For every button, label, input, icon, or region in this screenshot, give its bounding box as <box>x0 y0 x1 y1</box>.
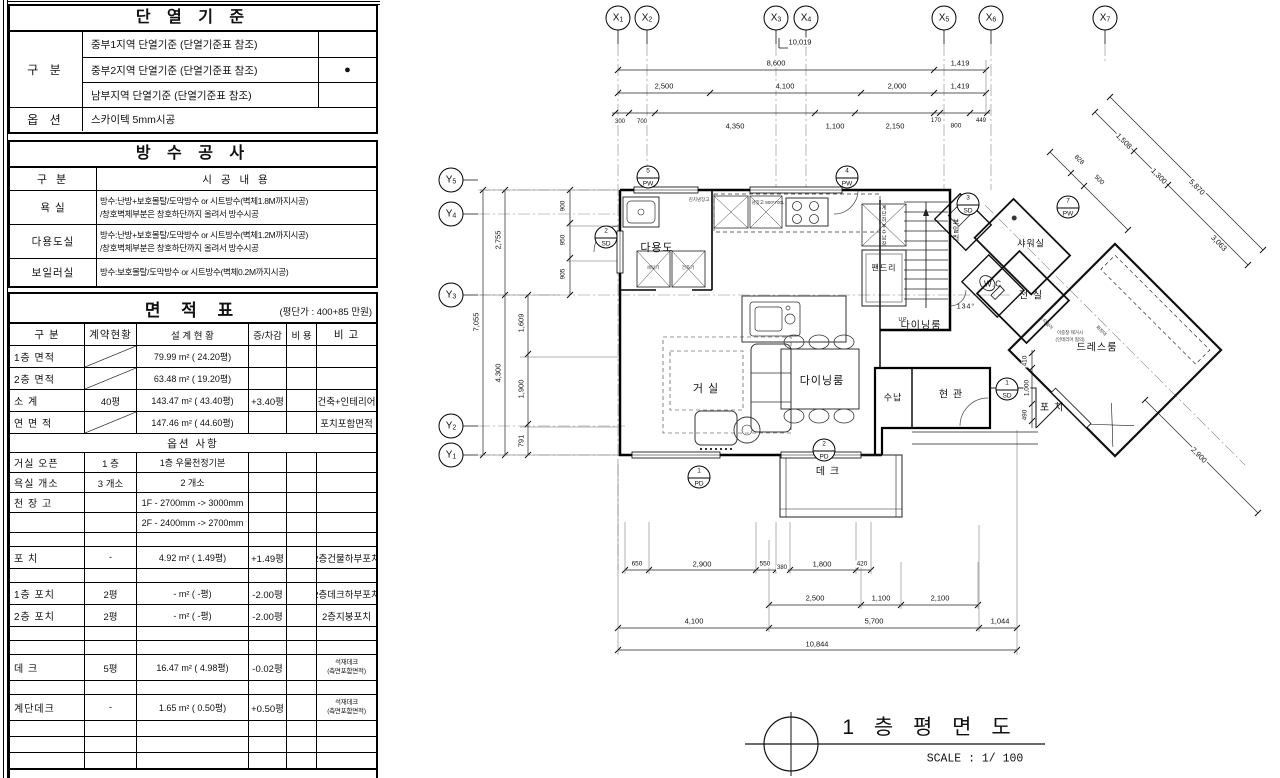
table-cell <box>286 641 316 654</box>
table-cell <box>286 412 316 433</box>
insulation-row-text: 중부1지역 단열기준 (단열기준표 참조) <box>82 32 318 57</box>
table-cell <box>286 547 316 568</box>
table-cell <box>316 473 376 492</box>
table-row: 1층 포치2평- m² ( -평)-2.00평2층데크하부포치 <box>10 582 376 604</box>
table-cell <box>286 627 316 640</box>
table-cell: 2 개소 <box>136 473 248 492</box>
table-cell <box>286 721 316 736</box>
wing-shower <box>975 199 1070 294</box>
table-cell: 석재데크(측면포함면적) <box>316 655 376 680</box>
table-cell: 40평 <box>84 390 136 411</box>
table-cell <box>248 533 286 546</box>
table-cell <box>10 533 84 546</box>
waterproof-line: 방수:보호몰탈/도막방수 or 시트방수(벽체0.2M까지시공) <box>100 266 288 278</box>
table-cell <box>316 368 376 389</box>
table-cell: 2층데크하부포치 <box>316 583 376 604</box>
insulation-row-text: 남부지역 단열기준 (단열기준표 참조) <box>82 82 318 107</box>
table-cell: 1 층 <box>84 453 136 472</box>
table-cell <box>10 641 84 654</box>
table-cell: 143.47 m² ( 43.40평) <box>136 390 248 411</box>
table-cell <box>316 346 376 367</box>
table-cell <box>248 737 286 752</box>
table-cell <box>84 641 136 654</box>
table-row <box>10 680 376 694</box>
table-cell: +1.49평 <box>248 547 286 568</box>
table-cell <box>248 473 286 492</box>
table-row: 2층 면적63.48 m² ( 19.20평) <box>10 367 376 389</box>
table-cell: 천 장 고 <box>10 493 84 512</box>
table-row: 옵션 사항 <box>10 433 376 452</box>
waterproof-row-label: 욕 실 <box>10 190 96 224</box>
table-cell: - <box>84 547 136 568</box>
table-cell: -2.00평 <box>248 605 286 626</box>
table-cell: 연 면 적 <box>10 412 84 433</box>
area-table-header: 구 분 계약현황 설 계 현 황 증/차감 비 용 비 고 <box>10 324 376 345</box>
area-table-rows: 1층 면적79.99 m² ( 24.20평)2층 면적63.48 m² ( 1… <box>10 345 376 778</box>
table-cell: 147.46 m² ( 44.60평) <box>136 412 248 433</box>
table-cell: 2층 포치 <box>10 605 84 626</box>
table-row <box>10 626 376 640</box>
table-row <box>10 532 376 546</box>
table-cell <box>286 605 316 626</box>
table-cell <box>248 753 286 768</box>
table-cell: 1.65 m² ( 0.50평) <box>136 695 248 720</box>
table-cell <box>248 368 286 389</box>
table-cell <box>84 753 136 768</box>
table-cell: 16.47 m² ( 4.98평) <box>136 655 248 680</box>
table-cell: 2평 <box>84 605 136 626</box>
area-header-cell: 증/차감 <box>248 324 286 345</box>
table-cell <box>10 721 84 736</box>
table-cell <box>84 627 136 640</box>
table-cell: 1층 포치 <box>10 583 84 604</box>
extension-lines <box>480 60 1017 655</box>
selected-dot: ● <box>318 57 376 82</box>
table-cell <box>10 753 84 768</box>
table-row: 데 크5평16.47 m² ( 4.98평)-0.02평석재데크(측면포함면적) <box>10 654 376 680</box>
table-cell <box>316 721 376 736</box>
table-cell: - m² ( -평) <box>136 583 248 604</box>
area-header-cell: 설 계 현 황 <box>136 324 248 345</box>
table-row: 욕실 개소3 개소2 개소 <box>10 472 376 492</box>
table-row: 1층 면적79.99 m² ( 24.20평) <box>10 345 376 367</box>
table-cell <box>316 569 376 582</box>
area-table-title-row: 면 적 표 (평단가 : 400+85 만원) <box>10 294 376 324</box>
waterproof-title: 방 수 공 사 <box>10 142 376 168</box>
table-cell <box>316 533 376 546</box>
table-cell <box>136 533 248 546</box>
area-header-cell: 비 용 <box>286 324 316 345</box>
table-cell: 욕실 개소 <box>10 473 84 492</box>
kitchen-fixtures <box>623 194 880 342</box>
table-cell: 1층 면적 <box>10 346 84 367</box>
table-row: 2층 포치2평- m² ( -평)-2.00평2층지붕포치 <box>10 604 376 626</box>
table-cell <box>316 513 376 532</box>
waterproof-table: 방 수 공 사 구 분 시 공 내 용 욕 실 방수:난방+보호몰탈/도막방수 … <box>8 140 378 288</box>
table-cell: 63.48 m² ( 19.20평) <box>136 368 248 389</box>
table-cell: 건축+인테리어 <box>316 390 376 411</box>
dimension-lines <box>483 70 1263 650</box>
insulation-row-mark <box>318 82 376 107</box>
table-cell: 석재데크(측면포함면적) <box>316 695 376 720</box>
table-row: 천 장 고1F - 2700mm -> 3000mm <box>10 492 376 512</box>
living-furniture <box>663 335 859 449</box>
table-cell: 1층 우물천정기본 <box>136 453 248 472</box>
waterproof-header-col2: 시 공 내 용 <box>96 168 376 190</box>
table-row: 계단데크-1.65 m² ( 0.50평)+0.50평석재데크(측면포함면적) <box>10 694 376 720</box>
table-cell <box>316 641 376 654</box>
waterproof-row-label: 보일러실 <box>10 258 96 286</box>
grid-lines <box>478 44 1245 570</box>
table-cell: 포 치 <box>10 547 84 568</box>
insulation-title: 단 열 기 준 <box>10 6 376 32</box>
area-header-cell: 구 분 <box>10 324 84 345</box>
table-cell: -2.00평 <box>248 583 286 604</box>
table-cell: +3.40평 <box>248 390 286 411</box>
table-row <box>10 736 376 752</box>
table-cell <box>136 721 248 736</box>
table-cell <box>286 473 316 492</box>
table-cell <box>316 737 376 752</box>
option-label: 옵 션 <box>10 107 82 131</box>
title-block-symbol <box>745 712 1045 776</box>
waterproof-row-label: 다용도실 <box>10 224 96 258</box>
table-cell: +0.50평 <box>248 695 286 720</box>
wing-wc <box>962 255 1024 317</box>
table-cell <box>248 681 286 694</box>
waterproof-line: 방수:난방+보호몰탈/도막방수 or 시트방수(벽체1.2M까지시공) <box>100 229 308 241</box>
table-cell <box>84 721 136 736</box>
table-cell <box>248 412 286 433</box>
table-cell: 5평 <box>84 655 136 680</box>
table-cell <box>286 681 316 694</box>
table-cell <box>286 453 316 472</box>
table-row: 거실 오픈1 층1층 우물천정기본 <box>10 452 376 472</box>
table-cell <box>136 569 248 582</box>
table-cell <box>84 681 136 694</box>
table-cell <box>248 346 286 367</box>
table-cell <box>316 627 376 640</box>
waterproof-header-col1: 구 분 <box>10 168 96 190</box>
table-cell <box>10 569 84 582</box>
waterproof-line: /창호벽체부분은 창호하단까지 올려서 방수시공 <box>100 208 259 220</box>
table-cell <box>286 753 316 768</box>
table-cell: 거실 오픈 <box>10 453 84 472</box>
table-row: 포 치-4.92 m² ( 1.49평)+1.49평2층건물하부포치 <box>10 546 376 568</box>
subtitle-cell: 옵션 사항 <box>10 434 376 452</box>
waterproof-line: /창호벽체부분은 창호하단까지 올려서 방수시공 <box>100 242 259 254</box>
table-cell <box>248 569 286 582</box>
table-cell <box>286 368 316 389</box>
table-cell <box>316 753 376 768</box>
table-cell <box>84 493 136 512</box>
table-cell: -0.02평 <box>248 655 286 680</box>
table-cell <box>84 569 136 582</box>
table-cell: - m² ( -평) <box>136 605 248 626</box>
table-cell <box>136 681 248 694</box>
table-cell <box>248 513 286 532</box>
table-cell: 1F - 2700mm -> 3000mm <box>136 493 248 512</box>
table-cell <box>316 493 376 512</box>
table-row <box>10 720 376 736</box>
table-cell <box>286 533 316 546</box>
dimension-ticks <box>480 67 1266 653</box>
table-cell <box>84 368 136 389</box>
table-cell <box>248 721 286 736</box>
table-cell <box>84 513 136 532</box>
table-cell: 포치포함면적 <box>316 412 376 433</box>
table-cell: 계단데크 <box>10 695 84 720</box>
table-cell: 3 개소 <box>84 473 136 492</box>
waterproof-row-text: 방수:보호몰탈/도막방수 or 시트방수(벽체0.2M까지시공) <box>96 258 376 286</box>
table-cell <box>286 583 316 604</box>
table-cell: 79.99 m² ( 24.20평) <box>136 346 248 367</box>
table-cell <box>84 533 136 546</box>
waterproof-line: 방수:난방+보호몰탈/도막방수 or 시트방수(벽체1.8M까지시공) <box>100 195 308 207</box>
table-row: 2F - 2400mm -> 2700mm <box>10 512 376 532</box>
insulation-row-text: 중부2지역 단열기준 (단열기준표 참조) <box>82 57 318 82</box>
table-cell <box>286 695 316 720</box>
table-cell <box>136 641 248 654</box>
table-cell <box>84 412 136 433</box>
table-cell <box>286 737 316 752</box>
table-cell <box>84 346 136 367</box>
table-cell <box>286 655 316 680</box>
wing-vestibule <box>977 251 1069 343</box>
table-cell <box>136 627 248 640</box>
next-section-cut <box>8 768 378 778</box>
table-cell <box>248 493 286 512</box>
area-table: 면 적 표 (평단가 : 400+85 만원) 구 분 계약현황 설 계 현 황… <box>8 292 378 778</box>
area-table-subtitle: (평단가 : 400+85 만원) <box>279 304 372 318</box>
table-cell <box>248 453 286 472</box>
table-cell <box>286 493 316 512</box>
table-cell: 2층건물하부포치 <box>316 547 376 568</box>
area-header-cell: 계약현황 <box>84 324 136 345</box>
table-cell <box>136 753 248 768</box>
table-row <box>10 568 376 582</box>
table-cell <box>316 681 376 694</box>
table-cell <box>286 569 316 582</box>
table-cell <box>286 346 316 367</box>
drawing-sheet: 1 층 평 면 도 SCALE : 1/ 100 10,0198,6001,41… <box>0 0 1280 778</box>
table-cell <box>136 737 248 752</box>
waterproof-row-text: 방수:난방+보호몰탈/도막방수 or 시트방수(벽체1.8M까지시공) /창호벽… <box>96 190 376 224</box>
area-header-cell: 비 고 <box>316 324 376 345</box>
table-cell <box>248 641 286 654</box>
table-cell <box>286 390 316 411</box>
wing-dressroom <box>1009 244 1221 456</box>
table-row: 소 계40평143.47 m² ( 43.40평)+3.40평건축+인테리어 <box>10 389 376 411</box>
option-text: 스카이텍 5mm시공 <box>82 107 376 131</box>
table-cell: - <box>84 695 136 720</box>
table-cell <box>10 627 84 640</box>
table-cell: 소 계 <box>10 390 84 411</box>
table-cell: 4.92 m² ( 1.49평) <box>136 547 248 568</box>
insulation-col-label: 구 분 <box>10 32 82 107</box>
table-cell <box>84 737 136 752</box>
table-cell <box>10 737 84 752</box>
table-cell <box>248 627 286 640</box>
waterproof-row-text: 방수:난방+보호몰탈/도막방수 or 시트방수(벽체1.2M까지시공) /창호벽… <box>96 224 376 258</box>
table-cell <box>286 513 316 532</box>
table-cell: 데 크 <box>10 655 84 680</box>
table-row <box>10 640 376 654</box>
table-cell <box>10 681 84 694</box>
table-cell: 2층 면적 <box>10 368 84 389</box>
table-cell <box>316 453 376 472</box>
table-cell <box>10 513 84 532</box>
insulation-row-mark <box>318 32 376 57</box>
table-cell: 2F - 2400mm -> 2700mm <box>136 513 248 532</box>
table-cell: 2평 <box>84 583 136 604</box>
table-row: 연 면 적147.46 m² ( 44.60평)포치포함면적 <box>10 411 376 433</box>
walls <box>620 190 990 455</box>
insulation-table: 단 열 기 준 구 분 중부1지역 단열기준 (단열기준표 참조) 중부2지역 … <box>8 4 378 134</box>
area-table-title: 면 적 표 <box>145 296 241 321</box>
table-cell: 2층지붕포치 <box>316 605 376 626</box>
table-row <box>10 752 376 768</box>
